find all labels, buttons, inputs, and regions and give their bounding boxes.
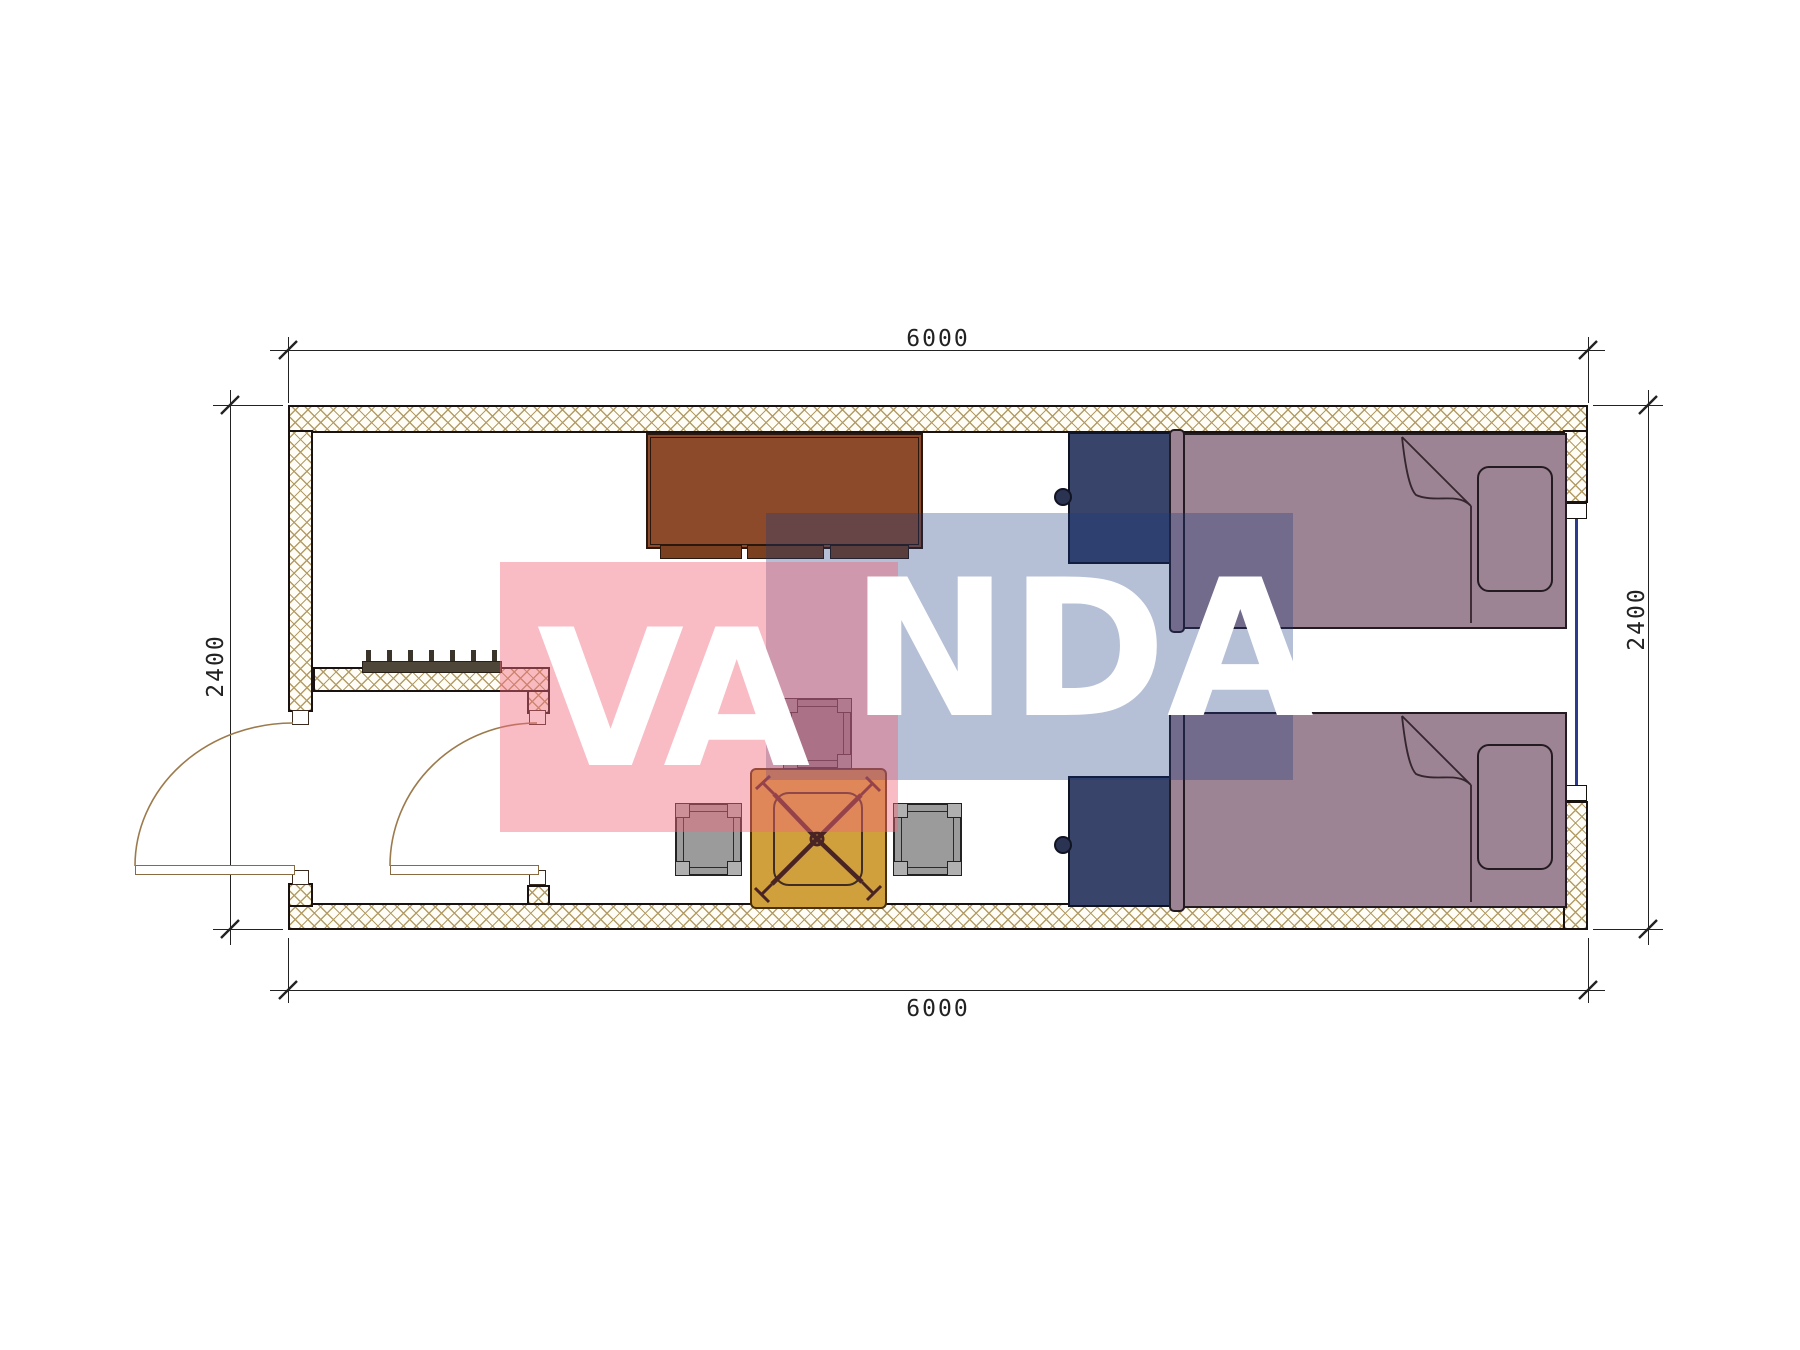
blanket-fold-bed-bottom [1402,716,1471,902]
door-swing-arc-exterior [135,723,293,866]
watermark-text-nda: NDA [850,555,1314,745]
watermark-text-va: VA [537,605,802,795]
floor-plan-canvas: 6000 6000 2400 2400 [0,0,1800,1350]
blanket-fold-bed-top [1402,437,1471,623]
